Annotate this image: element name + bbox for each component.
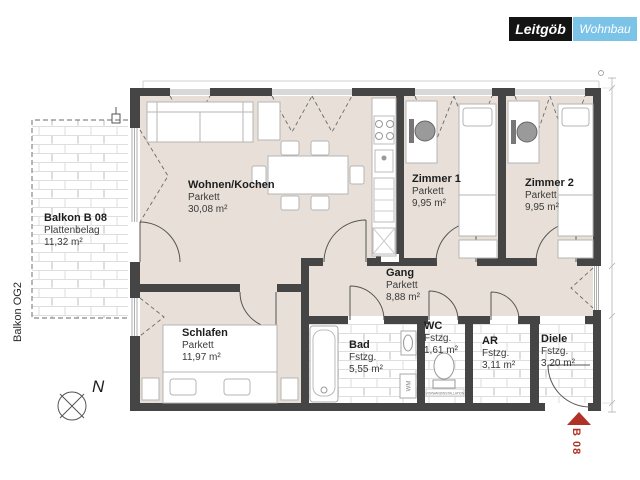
room-area: 5,55 m² — [349, 364, 383, 377]
room-surface: Parkett — [412, 186, 461, 199]
room-surface: Parkett — [386, 280, 420, 293]
room-name: Gang — [386, 267, 420, 280]
room-surface: Fstzg. — [349, 352, 383, 365]
room-surface: Parkett — [182, 340, 228, 353]
exterior-line — [143, 81, 599, 88]
room-label-zimmer1: Zimmer 1 Parkett 9,95 m² — [412, 173, 461, 211]
logo-sub-brand: Wohnbau — [573, 17, 637, 41]
sink-icon — [401, 331, 416, 355]
room-area: 30,08 m² — [188, 204, 275, 217]
room-name: Zimmer 1 — [412, 173, 461, 186]
balcony-side-label: Balkon OG2 — [12, 257, 24, 367]
washing-machine-icon: WM — [400, 374, 416, 398]
room-name: Diele — [541, 333, 575, 346]
floorplan-page: WM VORWANDINSTALLATION N Leitgöb Wohnbau… — [0, 0, 640, 480]
room-name: Schlafen — [182, 327, 228, 340]
room-label-balkon: Balkon B 08 Plattenbelag 11,32 m² — [44, 212, 107, 250]
room-label-gang: Gang Parkett 8,88 m² — [386, 267, 420, 305]
room-area: 3,11 m² — [482, 360, 515, 373]
room-area: 11,32 m² — [44, 237, 107, 250]
room-name: Balkon B 08 — [44, 212, 107, 225]
room-surface: Plattenbelag — [44, 225, 107, 238]
north-label: N — [92, 377, 105, 396]
room-surface: Parkett — [525, 190, 574, 203]
desk-zimmer1-icon — [406, 101, 437, 163]
entrance-marker-icon — [567, 412, 591, 425]
room-surface: Fstzg. — [541, 346, 575, 359]
kitchen-icon — [372, 98, 396, 256]
room-label-wohnen: Wohnen/Kochen Parkett 30,08 m² — [188, 179, 275, 217]
room-area: 8,88 m² — [386, 292, 420, 305]
bed-zimmer1-icon — [459, 104, 497, 258]
sofa-icon — [147, 102, 280, 142]
bathtub-icon — [310, 326, 338, 402]
wc-note: VORWANDINSTALLATION — [426, 391, 465, 395]
room-label-bad: Bad Fstzg. 5,55 m² — [349, 339, 383, 377]
logo-brand: Leitgöb — [509, 17, 572, 41]
dimension-line — [599, 71, 617, 413]
room-surface: Fstzg. — [424, 333, 458, 346]
room-area: 1,61 m² — [424, 345, 458, 358]
north-compass-icon: N — [58, 377, 105, 420]
room-area: 9,95 m² — [525, 202, 574, 215]
room-label-zimmer2: Zimmer 2 Parkett 9,95 m² — [525, 177, 574, 215]
unit-marker-label: B 08 — [570, 428, 582, 455]
room-label-ar: AR Fstzg. 3,11 m² — [482, 335, 515, 373]
room-area: 3,20 m² — [541, 358, 575, 371]
room-name: WC — [424, 320, 458, 333]
room-name: Bad — [349, 339, 383, 352]
room-label-wc: WC Fstzg. 1,61 m² — [424, 320, 458, 358]
washing-machine-label: WM — [407, 381, 413, 392]
desk-zimmer2-icon — [508, 101, 539, 163]
room-label-diele: Diele Fstzg. 3,20 m² — [541, 333, 575, 371]
room-area: 9,95 m² — [412, 198, 461, 211]
room-name: Wohnen/Kochen — [188, 179, 275, 192]
room-surface: Parkett — [188, 192, 275, 205]
room-area: 11,97 m² — [182, 352, 228, 365]
room-surface: Fstzg. — [482, 348, 515, 361]
room-name: AR — [482, 335, 515, 348]
room-name: Zimmer 2 — [525, 177, 574, 190]
room-label-schlafen: Schlafen Parkett 11,97 m² — [182, 327, 228, 365]
